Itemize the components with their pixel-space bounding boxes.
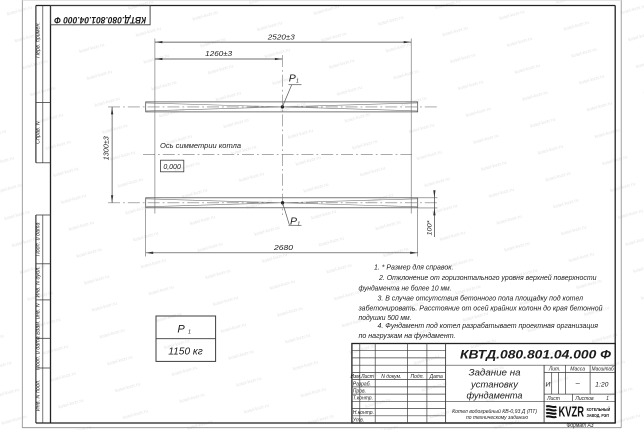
svg-text:1150 кг: 1150 кг [168, 347, 203, 358]
svg-text:установку: установку [470, 379, 519, 389]
svg-text:Взам. инв. N: Взам. инв. N [36, 303, 42, 335]
svg-text:Изм.: Изм. [350, 374, 361, 380]
svg-text:1:20: 1:20 [595, 381, 608, 388]
svg-text:Масштаб: Масштаб [592, 367, 614, 373]
svg-text:1: 1 [606, 396, 609, 402]
svg-text:ЗАВОД. РЭП: ЗАВОД. РЭП [587, 413, 609, 418]
svg-text:Формат А3: Формат А3 [567, 422, 594, 429]
svg-text:Инв. N подл.: Инв. N подл. [36, 380, 42, 412]
svg-text:Разраб.: Разраб. [353, 381, 371, 387]
svg-text:фундамента: фундамента [467, 390, 523, 400]
svg-text:1: 1 [188, 330, 191, 336]
svg-text:0,000: 0,000 [163, 162, 181, 171]
svg-text:Задание на: Задание на [469, 367, 521, 377]
svg-text:1. * Размер для справок.: 1. * Размер для справок. [374, 263, 454, 272]
svg-text:–: – [575, 379, 581, 388]
svg-text:P: P [290, 215, 297, 227]
svg-text:Масса: Масса [570, 367, 585, 373]
svg-text:P: P [289, 73, 296, 85]
svg-text:P: P [177, 323, 185, 335]
svg-text:Подп. и дата: Подп. и дата [36, 223, 42, 257]
svg-text:3. В случае отсутствия бетонно: 3. В случае отсутствия бетонного пола пл… [378, 294, 584, 303]
svg-text:Справ. N: Справ. N [36, 121, 42, 144]
svg-text:2. Отклонение от горизонтально: 2. Отклонение от горизонтального уровня … [378, 273, 596, 282]
svg-text:КОТЕЛЬНЫЙ: КОТЕЛЬНЫЙ [587, 407, 611, 412]
svg-text:Утв.: Утв. [353, 417, 364, 423]
svg-text:KVZR: KVZR [559, 405, 585, 421]
svg-text:Пров.: Пров. [353, 389, 366, 395]
svg-text:по техническому заданию: по техническому заданию [466, 415, 528, 421]
svg-text:Ось симметрии котла: Ось симметрии котла [160, 141, 241, 150]
svg-text:забетонировать. Расстояние от: забетонировать. Расстояние от осей крайн… [358, 304, 603, 313]
svg-text:Инв. N дубл.: Инв. N дубл. [36, 266, 42, 297]
svg-text:Лист: Лист [360, 374, 374, 380]
svg-text:1300±3: 1300±3 [104, 136, 111, 160]
svg-text:Т.контр.: Т.контр. [353, 396, 373, 402]
svg-text:1: 1 [296, 79, 299, 85]
svg-text:Н.контр.: Н.контр. [353, 410, 374, 416]
svg-text:4. Фундамент под котел разраба: 4. Фундамент под котел разрабатывает про… [378, 321, 599, 330]
svg-text:Подп.: Подп. [411, 374, 424, 380]
svg-text:Листов: Листов [574, 396, 594, 402]
svg-text:2680: 2680 [273, 243, 293, 252]
svg-text:Котел водогрейный КВ-0,93 Д (П: Котел водогрейный КВ-0,93 Д (ПТ) [452, 408, 537, 415]
svg-text:Дата: Дата [429, 374, 443, 380]
svg-text:Подп. и дата: Подп. и дата [36, 336, 42, 370]
svg-text:И: И [545, 381, 550, 388]
svg-text:по нагрузкам на фундамент.: по нагрузкам на фундамент. [359, 331, 456, 340]
svg-text:1260±3: 1260±3 [205, 49, 232, 58]
svg-text:1: 1 [297, 222, 300, 228]
svg-text:Перв. примен.: Перв. примен. [36, 22, 42, 58]
svg-text:2520±3: 2520±3 [267, 32, 295, 41]
svg-text:Лит.: Лит. [548, 367, 561, 373]
svg-text:КВТД.080.801.04.000 Ф: КВТД.080.801.04.000 Ф [460, 350, 611, 362]
svg-text:фундамента не более 10 мм.: фундамента не более 10 мм. [359, 283, 452, 292]
svg-text:100*: 100* [426, 220, 433, 236]
svg-text:КВТД.080.801.04.000 Ф: КВТД.080.801.04.000 Ф [54, 15, 146, 25]
svg-text:Лист: Лист [546, 396, 560, 402]
svg-text:N докум.: N докум. [381, 374, 401, 380]
